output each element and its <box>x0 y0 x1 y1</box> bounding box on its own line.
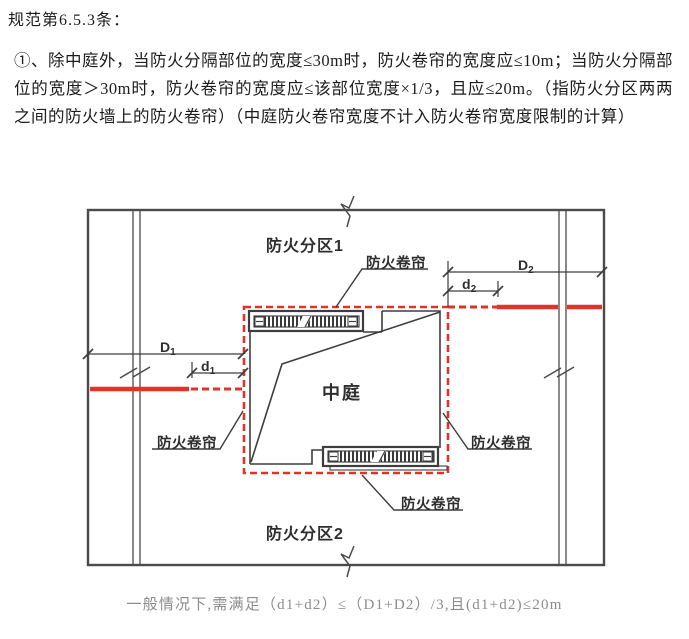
zone1-label: 防火分区1 <box>266 232 344 256</box>
fire-compartment-diagram <box>0 0 689 639</box>
dim-label-D1: D1 <box>160 339 176 358</box>
fire-shutter-symbol-bottom <box>323 447 447 470</box>
dim-label-D2: D2 <box>518 257 534 276</box>
shutter-label-left: 防火卷帘 <box>157 432 217 453</box>
shutter-label-bottom: 防火卷帘 <box>401 493 461 514</box>
atrium-label: 中庭 <box>322 379 362 405</box>
formula-caption: 一般情况下,需满足（d1+d2）≤（D1+D2）/3,且(d1+d2)≤20m <box>0 593 689 614</box>
dim-label-d1: d1 <box>201 358 215 377</box>
shutter-label-right: 防火卷帘 <box>471 432 531 453</box>
fire-shutter-symbol-top <box>249 311 363 331</box>
dim-label-d2: d2 <box>462 276 476 295</box>
document-page: 规范第6.5.3条： ①、除中庭外，当防火分隔部位的宽度≤30m时，防火卷帘的宽… <box>0 0 689 639</box>
shutter-label-top: 防火卷帘 <box>366 252 426 273</box>
zone2-label: 防火分区2 <box>266 520 344 544</box>
